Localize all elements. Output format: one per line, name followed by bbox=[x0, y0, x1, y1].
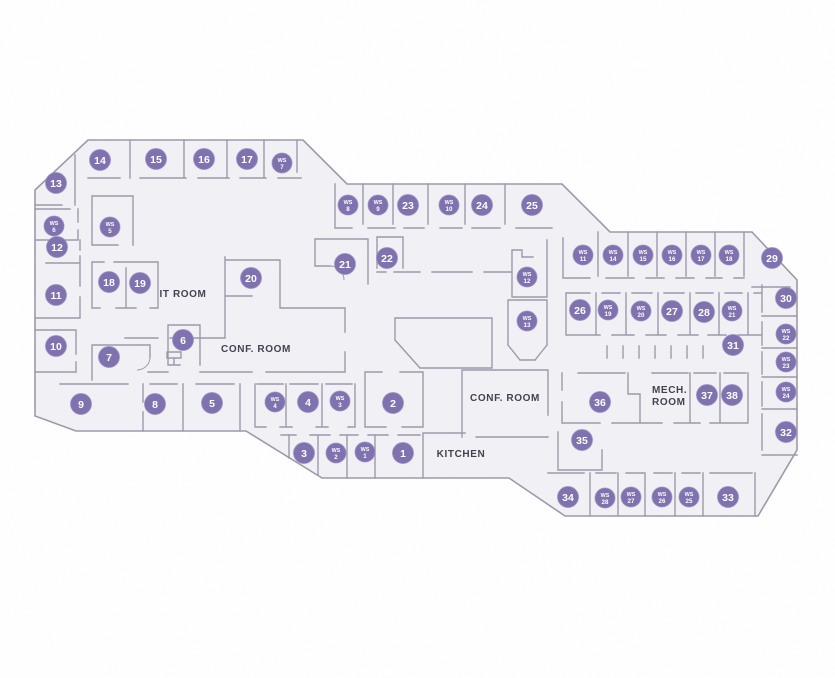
marker-circle[interactable] bbox=[393, 443, 414, 464]
marker-circle[interactable] bbox=[202, 393, 223, 414]
room-marker-33[interactable]: 33 bbox=[718, 487, 739, 508]
room-name-label: CONF. ROOM bbox=[221, 344, 291, 355]
marker-circle[interactable] bbox=[697, 385, 718, 406]
marker-circle[interactable] bbox=[398, 195, 419, 216]
ws-marker-24[interactable]: WS24 bbox=[776, 382, 796, 402]
ws-marker-16[interactable]: WS16 bbox=[662, 245, 682, 265]
marker-circle[interactable] bbox=[776, 382, 796, 402]
room-marker-16[interactable]: 16 bbox=[194, 149, 215, 170]
marker-circle[interactable] bbox=[298, 392, 319, 413]
marker-circle[interactable] bbox=[130, 273, 151, 294]
room-marker-13[interactable]: 13 bbox=[46, 173, 67, 194]
marker-circle[interactable] bbox=[621, 487, 641, 507]
marker-circle[interactable] bbox=[237, 149, 258, 170]
room-marker-10[interactable]: 10 bbox=[46, 336, 67, 357]
marker-circle[interactable] bbox=[598, 300, 618, 320]
room-marker-24[interactable]: 24 bbox=[472, 195, 493, 216]
marker-circle[interactable] bbox=[46, 285, 67, 306]
ws-marker-5[interactable]: WS5 bbox=[100, 217, 120, 237]
marker-circle[interactable] bbox=[265, 392, 285, 412]
marker-circle[interactable] bbox=[517, 267, 537, 287]
marker-circle[interactable] bbox=[46, 173, 67, 194]
marker-circle[interactable] bbox=[662, 245, 682, 265]
marker-circle[interactable] bbox=[330, 391, 350, 411]
marker-circle[interactable] bbox=[194, 149, 215, 170]
marker-circle[interactable] bbox=[517, 311, 537, 331]
room-name-label: KITCHEN bbox=[437, 449, 486, 460]
ws-marker-26[interactable]: WS26 bbox=[652, 487, 672, 507]
marker-circle[interactable] bbox=[146, 149, 167, 170]
ws-marker-1[interactable]: WS1 bbox=[355, 442, 375, 462]
marker-circle[interactable] bbox=[691, 245, 711, 265]
marker-circle[interactable] bbox=[100, 217, 120, 237]
room-marker-35[interactable]: 35 bbox=[572, 430, 593, 451]
room-marker-12[interactable]: 12 bbox=[47, 237, 68, 258]
marker-circle[interactable] bbox=[719, 245, 739, 265]
room-marker-3[interactable]: 3 bbox=[294, 443, 315, 464]
ws-marker-10[interactable]: WS10 bbox=[439, 195, 459, 215]
marker-circle[interactable] bbox=[776, 422, 797, 443]
ws-marker-17[interactable]: WS17 bbox=[691, 245, 711, 265]
room-marker-36[interactable]: 36 bbox=[590, 392, 611, 413]
marker-circle[interactable] bbox=[631, 301, 651, 321]
building-outline bbox=[35, 140, 797, 516]
marker-circle[interactable] bbox=[338, 195, 358, 215]
ws-marker-12[interactable]: WS12 bbox=[517, 267, 537, 287]
ws-marker-25[interactable]: WS25 bbox=[679, 487, 699, 507]
room-marker-38[interactable]: 38 bbox=[722, 385, 743, 406]
ws-marker-4[interactable]: WS4 bbox=[265, 392, 285, 412]
marker-circle[interactable] bbox=[573, 245, 593, 265]
ws-marker-14[interactable]: WS14 bbox=[603, 245, 623, 265]
room-name-label: IT ROOM bbox=[160, 289, 207, 300]
marker-circle[interactable] bbox=[368, 195, 388, 215]
marker-circle[interactable] bbox=[377, 248, 398, 269]
floor-plan-page: IT ROOMCONF. ROOMCONF. ROOMKITCHENMECH.R… bbox=[0, 0, 835, 678]
room-marker-21[interactable]: 21 bbox=[335, 254, 356, 275]
marker-circle[interactable] bbox=[595, 488, 615, 508]
marker-circle[interactable] bbox=[633, 245, 653, 265]
ws-marker-13[interactable]: WS13 bbox=[517, 311, 537, 331]
marker-circle[interactable] bbox=[355, 442, 375, 462]
ws-marker-19[interactable]: WS19 bbox=[598, 300, 618, 320]
ws-marker-23[interactable]: WS23 bbox=[776, 352, 796, 372]
ws-marker-2[interactable]: WS2 bbox=[326, 443, 346, 463]
marker-circle[interactable] bbox=[662, 301, 683, 322]
room-marker-29[interactable]: 29 bbox=[762, 248, 783, 269]
floorplan-svg: IT ROOMCONF. ROOMCONF. ROOMKITCHENMECH.R… bbox=[0, 0, 835, 678]
marker-circle[interactable] bbox=[47, 237, 68, 258]
ws-marker-6[interactable]: WS6 bbox=[44, 216, 64, 236]
room-marker-20[interactable]: 20 bbox=[241, 268, 262, 289]
room-marker-27[interactable]: 27 bbox=[662, 301, 683, 322]
room-marker-22[interactable]: 22 bbox=[377, 248, 398, 269]
room-marker-28[interactable]: 28 bbox=[694, 302, 715, 323]
marker-circle[interactable] bbox=[776, 288, 797, 309]
room-marker-30[interactable]: 30 bbox=[776, 288, 797, 309]
room-marker-34[interactable]: 34 bbox=[558, 487, 579, 508]
room-marker-25[interactable]: 25 bbox=[522, 195, 543, 216]
ws-marker-22[interactable]: WS22 bbox=[776, 324, 796, 344]
marker-circle[interactable] bbox=[173, 330, 194, 351]
room-marker-11[interactable]: 11 bbox=[46, 285, 67, 306]
ws-marker-28[interactable]: WS28 bbox=[595, 488, 615, 508]
room-marker-18[interactable]: 18 bbox=[99, 272, 120, 293]
ws-marker-18[interactable]: WS18 bbox=[719, 245, 739, 265]
room-name-label: ROOM bbox=[652, 397, 686, 408]
marker-circle[interactable] bbox=[679, 487, 699, 507]
ws-marker-7[interactable]: WS7 bbox=[272, 153, 292, 173]
room-marker-23[interactable]: 23 bbox=[398, 195, 419, 216]
marker-circle[interactable] bbox=[383, 393, 404, 414]
marker-circle[interactable] bbox=[558, 487, 579, 508]
marker-circle[interactable] bbox=[603, 245, 623, 265]
ws-marker-9[interactable]: WS9 bbox=[368, 195, 388, 215]
marker-circle[interactable] bbox=[762, 248, 783, 269]
marker-circle[interactable] bbox=[718, 487, 739, 508]
room-marker-15[interactable]: 15 bbox=[146, 149, 167, 170]
marker-circle[interactable] bbox=[90, 150, 111, 171]
ws-marker-3[interactable]: WS3 bbox=[330, 391, 350, 411]
marker-circle[interactable] bbox=[294, 443, 315, 464]
room-marker-37[interactable]: 37 bbox=[697, 385, 718, 406]
room-marker-31[interactable]: 31 bbox=[723, 335, 744, 356]
room-name-label: MECH. bbox=[652, 385, 687, 396]
marker-circle[interactable] bbox=[652, 487, 672, 507]
marker-circle[interactable] bbox=[439, 195, 459, 215]
room-marker-5[interactable]: 5 bbox=[202, 393, 223, 414]
marker-circle[interactable] bbox=[590, 392, 611, 413]
room-marker-8[interactable]: 8 bbox=[145, 394, 166, 415]
marker-circle[interactable] bbox=[145, 394, 166, 415]
room-marker-7[interactable]: 7 bbox=[99, 347, 120, 368]
marker-circle[interactable] bbox=[472, 195, 493, 216]
room-name-label: CONF. ROOM bbox=[470, 393, 540, 404]
marker-circle[interactable] bbox=[776, 352, 796, 372]
room-marker-26[interactable]: 26 bbox=[570, 300, 591, 321]
marker-circle[interactable] bbox=[776, 324, 796, 344]
marker-circle[interactable] bbox=[694, 302, 715, 323]
marker-circle[interactable] bbox=[722, 301, 742, 321]
room-marker-9[interactable]: 9 bbox=[71, 394, 92, 415]
ws-marker-21[interactable]: WS21 bbox=[722, 301, 742, 321]
ws-marker-15[interactable]: WS15 bbox=[633, 245, 653, 265]
room-marker-4[interactable]: 4 bbox=[298, 392, 319, 413]
marker-circle[interactable] bbox=[99, 347, 120, 368]
marker-circle[interactable] bbox=[335, 254, 356, 275]
marker-circle[interactable] bbox=[272, 153, 292, 173]
room-marker-2[interactable]: 2 bbox=[383, 393, 404, 414]
marker-circle[interactable] bbox=[241, 268, 262, 289]
marker-circle[interactable] bbox=[99, 272, 120, 293]
room-marker-32[interactable]: 32 bbox=[776, 422, 797, 443]
marker-circle[interactable] bbox=[722, 385, 743, 406]
ws-marker-27[interactable]: WS27 bbox=[621, 487, 641, 507]
marker-circle[interactable] bbox=[723, 335, 744, 356]
ws-marker-20[interactable]: WS20 bbox=[631, 301, 651, 321]
room-marker-6[interactable]: 6 bbox=[173, 330, 194, 351]
marker-circle[interactable] bbox=[44, 216, 64, 236]
room-marker-19[interactable]: 19 bbox=[130, 273, 151, 294]
room-marker-14[interactable]: 14 bbox=[90, 150, 111, 171]
ws-marker-11[interactable]: WS11 bbox=[573, 245, 593, 265]
ws-marker-8[interactable]: WS8 bbox=[338, 195, 358, 215]
marker-circle[interactable] bbox=[522, 195, 543, 216]
room-marker-17[interactable]: 17 bbox=[237, 149, 258, 170]
room-marker-1[interactable]: 1 bbox=[393, 443, 414, 464]
marker-circle[interactable] bbox=[71, 394, 92, 415]
marker-circle[interactable] bbox=[572, 430, 593, 451]
marker-circle[interactable] bbox=[326, 443, 346, 463]
marker-circle[interactable] bbox=[570, 300, 591, 321]
marker-circle[interactable] bbox=[46, 336, 67, 357]
